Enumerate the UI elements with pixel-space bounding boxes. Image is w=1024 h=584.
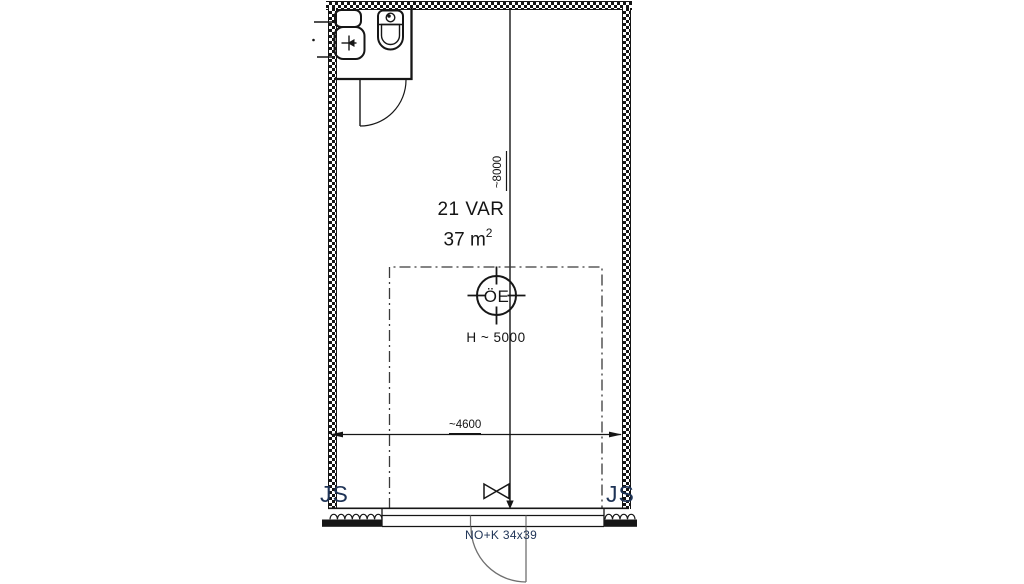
entry-door <box>471 516 527 583</box>
dim-8000-text: ~8000 <box>493 154 505 190</box>
room-area-exponent: 2 <box>486 226 493 240</box>
room-area-value: 37 m <box>444 229 486 250</box>
ceiling-height-note: H ~ 5000 <box>456 331 536 345</box>
bottom-wall <box>322 508 637 527</box>
ceiling-symbol-text: ÖE <box>481 288 512 305</box>
floor-plan-drawing: 21 VAR 37 m2 ~8000 ÖE H ~ 5000 ~4600 JS … <box>0 0 1024 584</box>
bathroom-door <box>360 80 406 126</box>
js-label-left: JS <box>320 483 349 506</box>
room-label: 21 VAR <box>431 200 511 219</box>
js-label-right: JS <box>606 483 635 506</box>
washbasin-icon <box>335 27 365 59</box>
shelf-icon <box>335 10 361 27</box>
plan-linework <box>0 0 1024 584</box>
room-area-label: 37 m2 <box>431 228 505 249</box>
valve-symbol <box>484 484 509 499</box>
toilet-icon <box>378 11 403 50</box>
opening-spec-label: NO+K 34x39 <box>465 529 537 541</box>
dim-4600-text: ~4600 <box>449 420 481 434</box>
supply-connection-ticks <box>312 22 334 57</box>
